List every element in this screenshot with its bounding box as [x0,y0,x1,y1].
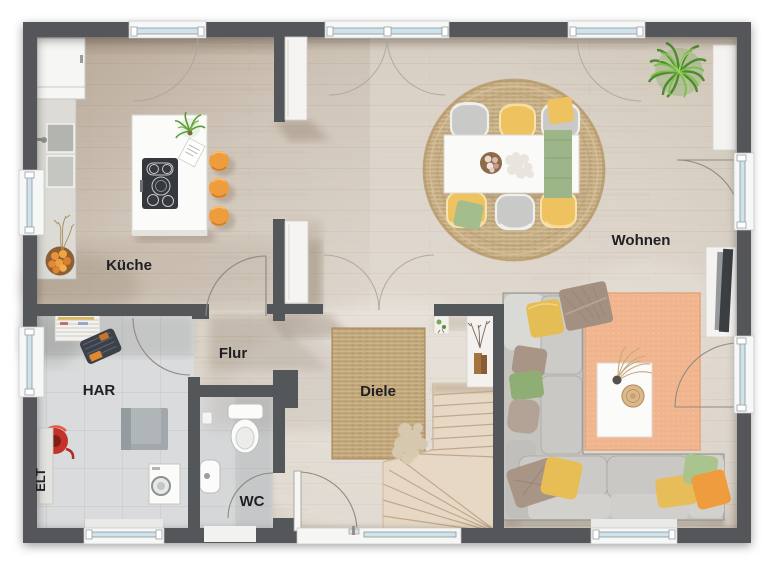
svg-text:Flur: Flur [219,345,247,362]
svg-text:Diele: Diele [360,383,396,400]
svg-text:ELT: ELT [33,468,48,492]
svg-text:Küche: Küche [106,257,152,274]
svg-text:Wohnen: Wohnen [612,232,671,249]
svg-text:HAR: HAR [83,382,116,399]
svg-text:WC: WC [240,493,265,510]
